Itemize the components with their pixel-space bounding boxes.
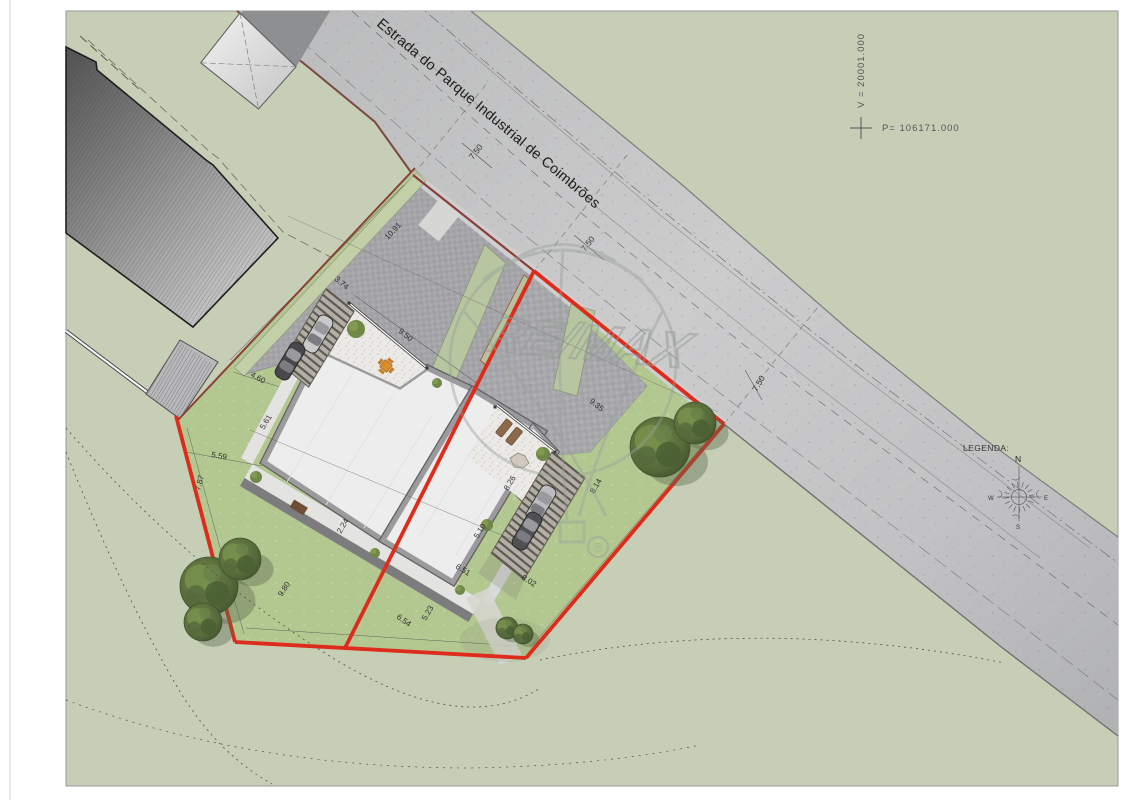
svg-text:®: ® — [593, 540, 603, 555]
svg-text:W: W — [988, 496, 994, 502]
svg-text:N: N — [1015, 454, 1021, 464]
svg-text:P= 106171.000: P= 106171.000 — [882, 123, 960, 134]
svg-text:S: S — [1016, 525, 1020, 531]
svg-text:LEGENDA:: LEGENDA: — [963, 443, 1009, 453]
svg-text:V = 20001.000: V = 20001.000 — [856, 33, 867, 108]
svg-text:E: E — [1044, 496, 1048, 502]
